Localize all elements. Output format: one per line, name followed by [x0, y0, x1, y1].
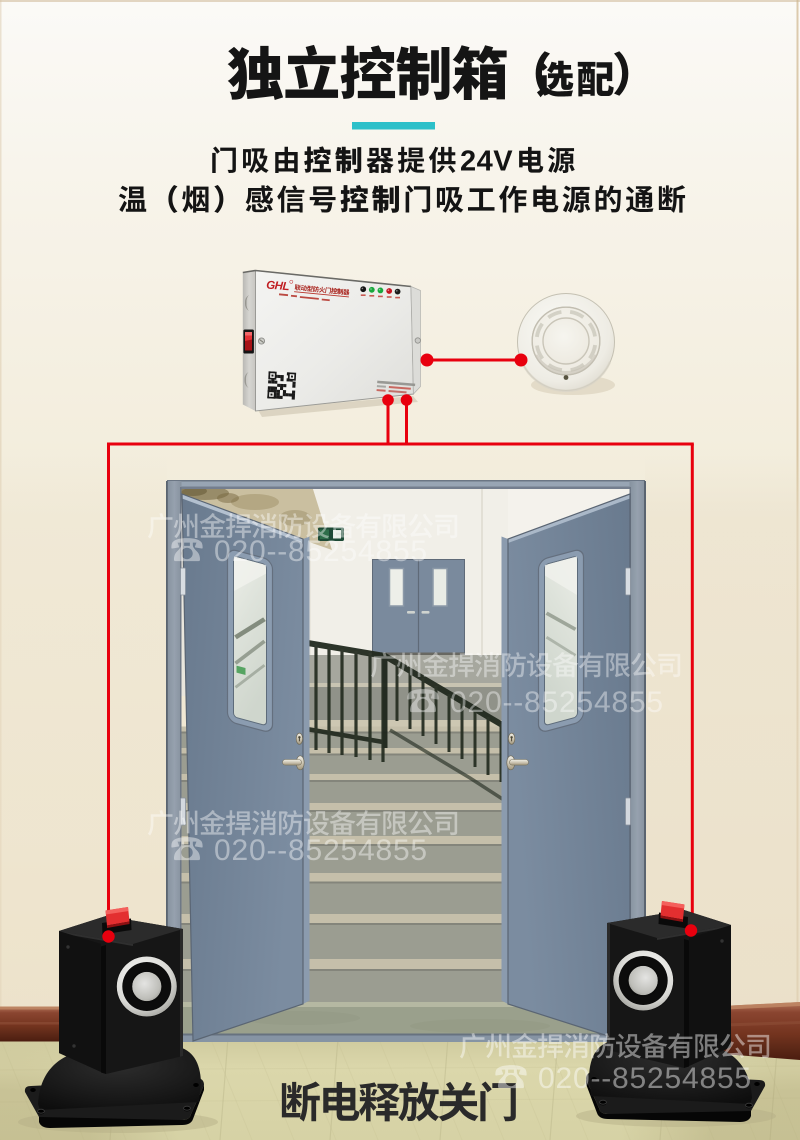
svg-text:020--85254855: 020--85254855: [450, 686, 664, 719]
svg-text:24V: 24V: [460, 146, 513, 178]
svg-text:020--85254855: 020--85254855: [214, 535, 428, 568]
svg-text:GHL: GHL: [266, 280, 290, 294]
svg-text:020--85254855: 020--85254855: [214, 834, 428, 867]
svg-text:020--85254855: 020--85254855: [538, 1062, 752, 1095]
